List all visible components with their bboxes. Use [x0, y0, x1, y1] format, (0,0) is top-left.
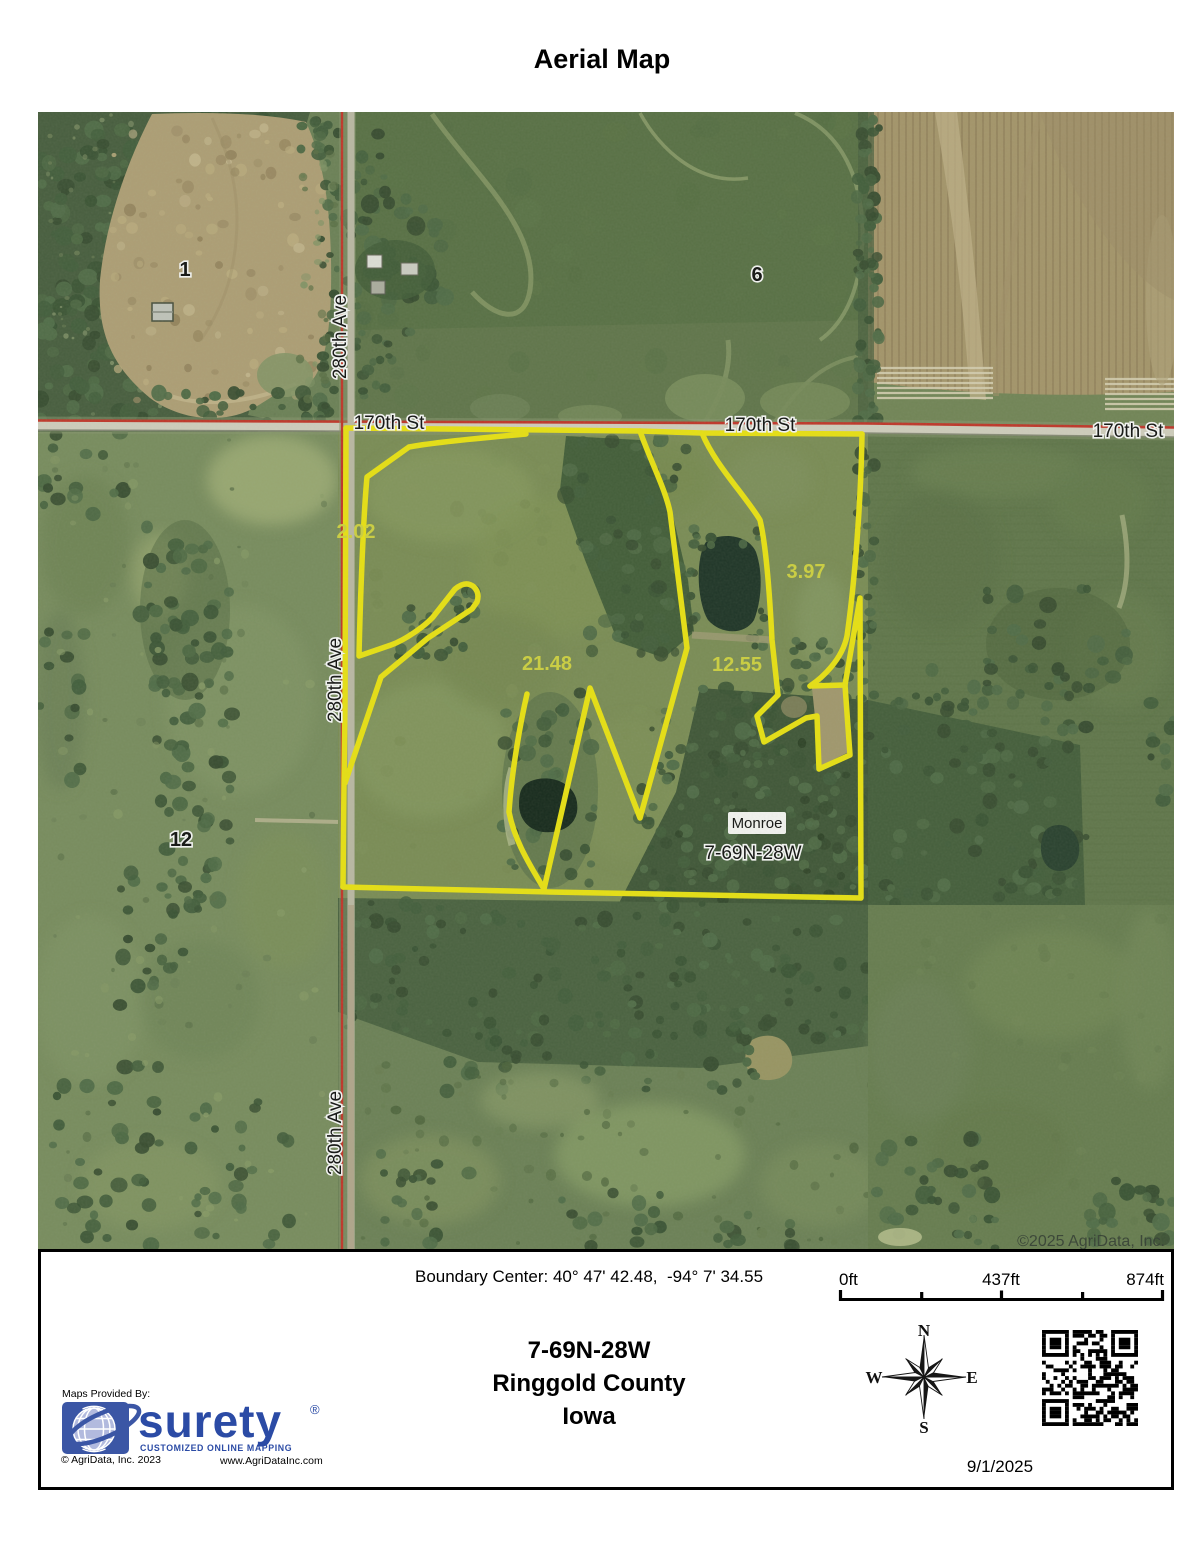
svg-text:W: W: [866, 1368, 883, 1387]
svg-text:surety: surety: [138, 1399, 282, 1447]
svg-text:874ft: 874ft: [1126, 1270, 1164, 1289]
svg-text:S: S: [919, 1418, 928, 1437]
svg-text:CUSTOMIZED ONLINE MAPPING: CUSTOMIZED ONLINE MAPPING: [140, 1443, 292, 1453]
svg-text:0ft: 0ft: [839, 1270, 858, 1289]
svg-text:E: E: [966, 1368, 977, 1387]
svg-text:®: ®: [310, 1402, 320, 1417]
svg-text:437ft: 437ft: [982, 1270, 1020, 1289]
svg-text:N: N: [918, 1321, 931, 1340]
